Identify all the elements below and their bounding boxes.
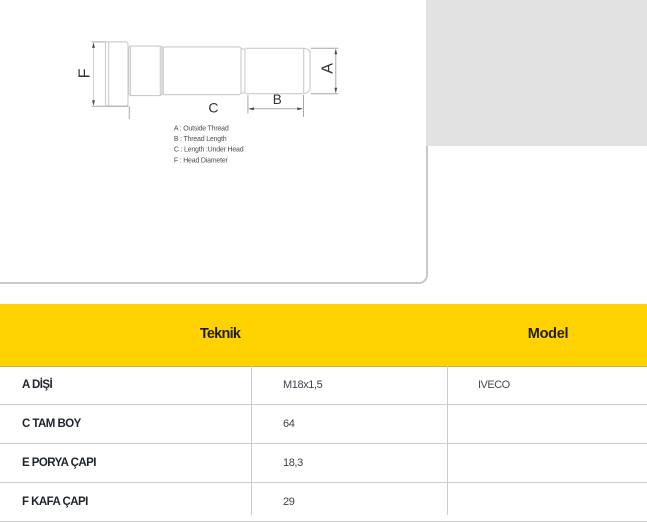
svg-text:A : Outside Thread: A : Outside Thread bbox=[174, 125, 229, 132]
svg-text:B: B bbox=[273, 92, 282, 107]
svg-text:C: C bbox=[208, 99, 218, 115]
svg-text:F: F bbox=[77, 68, 94, 78]
svg-text:F : Head Diameter: F : Head Diameter bbox=[174, 157, 229, 164]
svg-text:A: A bbox=[320, 63, 337, 74]
svg-text:B : Thread Length: B : Thread Length bbox=[174, 136, 227, 143]
svg-text:C : Length :Under Head: C : Length :Under Head bbox=[174, 147, 244, 154]
